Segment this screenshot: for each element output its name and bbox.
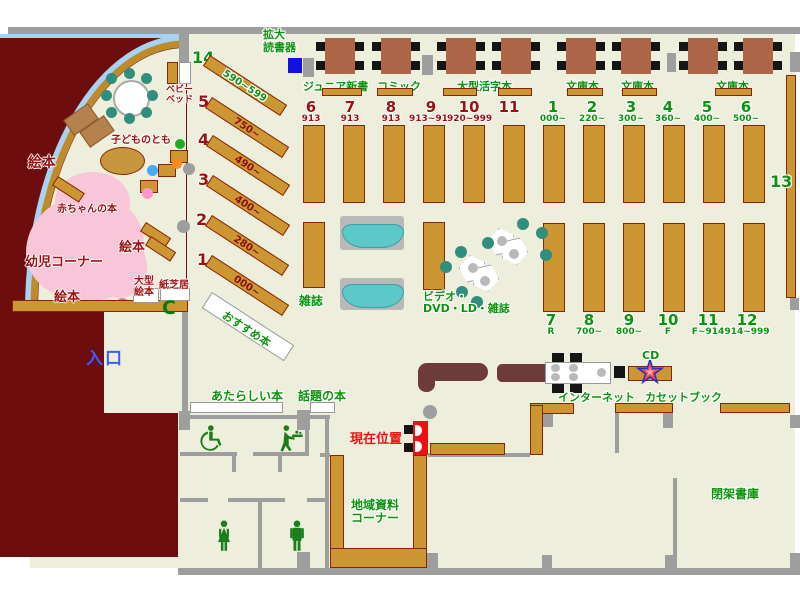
chair [552, 353, 564, 362]
local-materials-shelf [330, 548, 427, 568]
chair [410, 61, 420, 70]
shelf-label: 12914~999 [721, 314, 773, 338]
end-shelf [567, 88, 603, 96]
phone-icon: C [162, 297, 176, 319]
wall-top [8, 27, 800, 34]
stool [440, 261, 452, 273]
wall [615, 413, 619, 453]
kamishibai-label: 紙芝居 [159, 276, 189, 291]
wall [179, 28, 189, 62]
stool [517, 218, 529, 230]
pillar-round [183, 163, 195, 175]
stool [141, 107, 152, 118]
magazine-label: 雑誌 [299, 292, 323, 309]
reading-table [743, 38, 773, 74]
wall [307, 498, 327, 502]
bookshelf [703, 125, 725, 203]
wall [258, 500, 262, 568]
chair [475, 61, 485, 70]
reading-table [446, 38, 476, 74]
bookshelf [303, 125, 325, 203]
pillar [303, 58, 314, 77]
bookshelf [463, 125, 485, 203]
cd-label: CD [642, 349, 659, 362]
wall [180, 498, 208, 502]
wall [278, 452, 282, 472]
wall [232, 452, 236, 472]
chair [530, 61, 540, 70]
chair [354, 42, 364, 51]
bookshelf [623, 125, 645, 203]
topic-books-shelf [310, 402, 335, 413]
stool [141, 73, 152, 84]
man-icon [286, 520, 308, 553]
pillar [297, 552, 310, 568]
shelf-label: 4360~ [646, 101, 690, 125]
chair [650, 42, 660, 51]
ehon-label: 絵本 [54, 286, 80, 305]
cushion [175, 139, 185, 149]
reading-table [381, 38, 411, 74]
magnifier-reader [288, 58, 302, 73]
bookshelf [743, 223, 765, 312]
cushion [142, 188, 153, 199]
seat [597, 368, 606, 377]
bookshelf [663, 125, 685, 203]
cushion [172, 159, 182, 169]
large-picture-book-label: 大型絵本 [134, 276, 154, 298]
lower-wall-block [0, 413, 178, 557]
shelf-label: 8913 [369, 101, 413, 125]
chair [354, 61, 364, 70]
infant-corner-label: 幼児コーナー [25, 251, 103, 270]
wall-bottom [178, 568, 800, 575]
woman-icon [213, 520, 235, 553]
chair [595, 42, 605, 51]
pillar [542, 555, 552, 568]
shelf-label: 6500~ [724, 101, 768, 125]
end-shelf [498, 88, 532, 96]
seat [569, 364, 578, 372]
chair [595, 61, 605, 70]
seat [480, 276, 490, 286]
current-location-label: 現在位置 [350, 428, 402, 447]
bookshelf [583, 125, 605, 203]
wall [180, 452, 237, 456]
pillar [667, 53, 676, 72]
seat [569, 373, 578, 381]
cushion [147, 165, 158, 176]
pillar [179, 411, 190, 430]
stool [455, 246, 467, 258]
bookshelf [343, 125, 365, 203]
bookshelf [503, 125, 525, 203]
bookshelf [583, 223, 605, 312]
magazine-shelf [303, 222, 325, 288]
baby-bed [179, 62, 191, 84]
chair [717, 61, 727, 70]
marker-block [404, 425, 413, 434]
stool [147, 90, 158, 101]
shelf-label: 6913 [289, 101, 333, 125]
new-books-shelf [190, 402, 283, 413]
end-shelf [377, 88, 413, 96]
bookshelf [383, 125, 405, 203]
bookshelf [543, 125, 565, 203]
pillar [790, 553, 800, 568]
stool [101, 90, 112, 101]
reading-table [325, 38, 355, 74]
pillar [790, 298, 799, 310]
pillar [665, 555, 677, 568]
reading-table [688, 38, 718, 74]
chair [772, 61, 782, 70]
arc-blue-line [0, 34, 183, 38]
reading-table [566, 38, 596, 74]
shelf-label: 10920~999 [447, 101, 491, 125]
library-floor-map: 絵本 赤ちゃんの本 幼児コーナー 絵本 絵本 子どものとも ベビーベッド 大型絵… [0, 0, 800, 600]
stool [124, 113, 135, 124]
baby-books-label: 赤ちゃんの本 [57, 200, 117, 215]
chair [570, 353, 582, 362]
bookshelf [743, 125, 765, 203]
seat [497, 236, 507, 246]
pillar [790, 415, 800, 428]
bookshelf [623, 223, 645, 312]
seat [468, 263, 478, 273]
chair [410, 42, 420, 51]
shelf-label: 2220~ [570, 101, 614, 125]
end-shelf [443, 88, 477, 96]
wall [320, 453, 330, 457]
local-materials-label: 地域資料コーナー [351, 499, 399, 525]
magnifier-reader-label: 拡大読書器 [263, 28, 296, 54]
reading-table [501, 38, 531, 74]
chair [475, 42, 485, 51]
video-shelf [423, 222, 445, 290]
bookshelf [720, 403, 790, 413]
pillar [790, 52, 800, 72]
stool [124, 68, 135, 79]
closed-stacks-label: 閉架書庫 [711, 485, 759, 502]
bookshelf [423, 125, 445, 203]
ehon-label: 絵本 [28, 152, 56, 172]
marker-block [404, 443, 413, 452]
entrance-label: 入口 [86, 344, 124, 369]
stool [106, 73, 117, 84]
wall [228, 498, 285, 502]
stool [106, 107, 117, 118]
pillar [422, 55, 433, 75]
reading-table [621, 38, 651, 74]
chair [614, 366, 625, 378]
bookshelf [663, 223, 685, 312]
end-shelf [715, 88, 752, 96]
stool [540, 249, 552, 261]
shelf-label: 11 [487, 101, 531, 114]
stool [482, 237, 494, 249]
end-shelf [622, 88, 657, 96]
seat [509, 249, 519, 259]
shelf-label: 1000~ [531, 101, 575, 125]
kodomo-no-tomo-label: 子どものとも [111, 131, 171, 146]
bookshelf [530, 405, 543, 455]
baby-bed-label: ベビーベッド [166, 85, 193, 105]
chair [650, 61, 660, 70]
bookshelf [703, 223, 725, 312]
pillar-round [177, 220, 190, 233]
chair [717, 42, 727, 51]
video-label: ビデオ・DVD・LD・雑誌 [423, 291, 510, 315]
baby-change-icon [277, 424, 305, 452]
bench [342, 224, 404, 248]
wheelchair-icon [198, 424, 226, 452]
bench [342, 284, 404, 308]
shelf-label: 5400~ [685, 101, 729, 125]
baby-bed-shelf [167, 62, 178, 84]
chair [530, 42, 540, 51]
seat [551, 373, 560, 381]
wall [325, 415, 329, 568]
bookshelf [615, 403, 673, 413]
pillar-round [423, 405, 437, 419]
shelf-number-13: 13 [770, 172, 792, 191]
service-counter [418, 370, 435, 392]
pillar [543, 413, 553, 427]
pillar [427, 553, 438, 568]
end-shelf [322, 88, 362, 96]
pillar [663, 413, 673, 428]
bookshelf [430, 443, 505, 455]
stool [536, 227, 548, 239]
shelf-label: 7913 [328, 101, 372, 125]
chair [772, 42, 782, 51]
ehon-label: 絵本 [119, 236, 145, 255]
kids-oval-table [100, 147, 145, 175]
seat [551, 364, 560, 372]
